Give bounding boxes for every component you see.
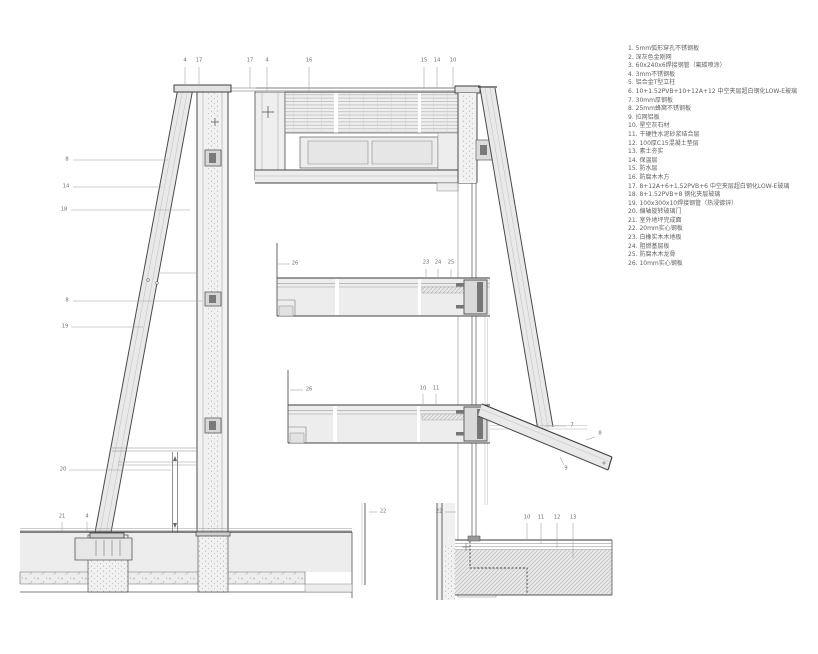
legend-item: 1. 5mm弧形穿孔不锈钢板 — [628, 45, 814, 54]
mullion-base-plate — [468, 536, 480, 541]
architectural-detail-sheet: 4171741615141081418819202142623242526101… — [0, 0, 818, 654]
legend-list: 1. 5mm弧形穿孔不锈钢板2. 深灰色金刚网3. 60x240x6焊接钢管（氟… — [628, 45, 814, 268]
legend-item: 2. 深灰色金刚网 — [628, 54, 814, 63]
roof-deck-hatch — [285, 92, 458, 133]
legend-item: 12. 100厚C15混凝土垫层 — [628, 140, 814, 149]
roof-assembly — [255, 88, 477, 191]
legend-item: 8. 25mm蜂窝不锈钢板 — [628, 105, 814, 114]
legend-item: 15. 防水层 — [628, 165, 814, 174]
legend-item: 17. 8+12A+6+1.52PVB+6 中空夹层超白钢化LOW-E玻璃 — [628, 183, 814, 192]
legend-item: 10. 星空灰石材 — [628, 122, 814, 131]
column-splice-bolt — [156, 282, 159, 285]
floor-band-lower — [288, 370, 490, 443]
survey-cross-mark — [462, 543, 470, 551]
legend-item: 3. 60x240x6焊接钢管（氟碳喷涂） — [628, 62, 814, 71]
legend-item: 24. 阻燃基层板 — [628, 243, 814, 252]
ground-detail-right — [437, 503, 612, 600]
legend-item: 7. 30mm厚钢板 — [628, 97, 814, 106]
material-legend: 1. 5mm弧形穿孔不锈钢板2. 深灰色金刚网3. 60x240x6焊接钢管（氟… — [628, 45, 814, 268]
wall-steel-connector — [205, 418, 221, 433]
legend-item: 23. 白橡实木木地板 — [628, 234, 814, 243]
legend-item: 19. 100x300x10焊接钢管（热浸镀锌） — [628, 200, 814, 209]
legend-item: 6. 10+1.52PVB+10+12A+12 中空夹层超白钢化LOW-E玻璃 — [628, 88, 814, 97]
compacted-soil-hatch — [455, 550, 612, 595]
wall-top-cap — [174, 85, 231, 92]
right-sloped-column — [478, 87, 553, 430]
ground-detail-left — [20, 503, 365, 598]
roof-wood-blocking — [300, 137, 438, 168]
roof-soffit — [255, 170, 477, 191]
legend-item: 18. 8+1.52PVB+8 钢化夹层玻璃 — [628, 191, 814, 200]
legend-item: 16. 防腐木木方 — [628, 174, 814, 183]
legend-item: 22. 20mm实心钢板 — [628, 225, 814, 234]
wall-steel-connector — [205, 150, 221, 166]
legend-item: 25. 防腐木木龙骨 — [628, 251, 814, 260]
left-sloped-column — [94, 88, 193, 538]
roof-edge-wall — [255, 92, 285, 180]
concrete-cushion — [20, 572, 305, 584]
glazing-mullion — [458, 183, 587, 540]
legend-item: 13. 素土夯实 — [628, 148, 814, 157]
legend-item: 26. 10mm实心钢板 — [628, 260, 814, 269]
legend-item: 5. 铝合金T型立柱 — [628, 79, 814, 88]
wall-steel-connector — [205, 292, 221, 306]
legend-item: 11. 干硬性水泥砂浆结合层 — [628, 131, 814, 140]
column-splice-bolt — [147, 279, 150, 282]
legend-item: 20. 偏轴旋转玻璃门 — [628, 208, 814, 217]
wall-footing — [196, 532, 230, 592]
